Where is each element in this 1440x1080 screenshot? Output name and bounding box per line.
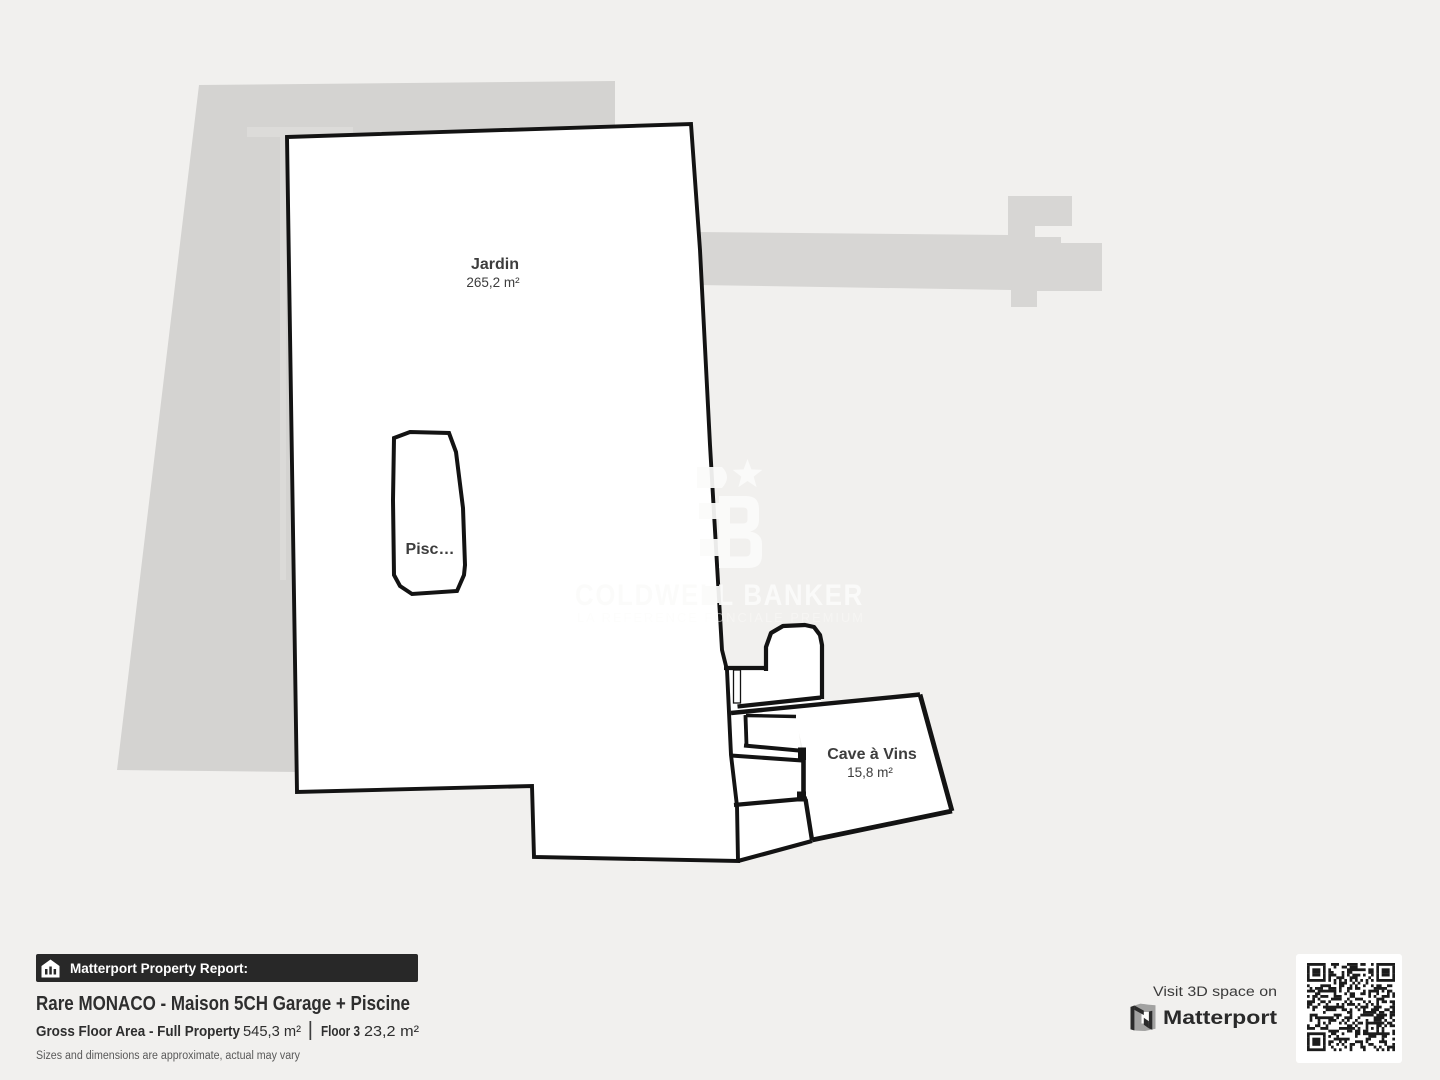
svg-text:Matterport Property Report:: Matterport Property Report:: [70, 961, 248, 976]
svg-text:Cave à Vins: Cave à Vins: [827, 746, 917, 763]
svg-text:545,3 m²: 545,3 m²: [243, 1023, 301, 1040]
svg-text:Sizes and dimensions are appro: Sizes and dimensions are approximate, ac…: [36, 1050, 300, 1062]
svg-text:Floor 3: Floor 3: [321, 1023, 360, 1040]
svg-text:LA REFERENCE FONCIALE PREMIUM: LA REFERENCE FONCIALE PREMIUM: [577, 611, 865, 625]
svg-text:COLDWELL BANKER: COLDWELL BANKER: [575, 579, 864, 612]
svg-text:Visit 3D space on: Visit 3D space on: [1153, 984, 1277, 999]
svg-text:15,8 m²: 15,8 m²: [847, 765, 893, 780]
svg-text:Rare MONACO - Maison 5CH Garag: Rare MONACO - Maison 5CH Garage + Piscin…: [36, 992, 410, 1015]
svg-text:Jardin: Jardin: [471, 256, 519, 273]
svg-text:Gross Floor Area - Full Proper: Gross Floor Area - Full Property: [36, 1023, 241, 1040]
svg-text:Matterport: Matterport: [1163, 1007, 1278, 1029]
svg-text:265,2 m²: 265,2 m²: [466, 275, 520, 290]
svg-text:Pisc…: Pisc…: [406, 541, 455, 558]
svg-text:23,2 m²: 23,2 m²: [364, 1023, 419, 1040]
